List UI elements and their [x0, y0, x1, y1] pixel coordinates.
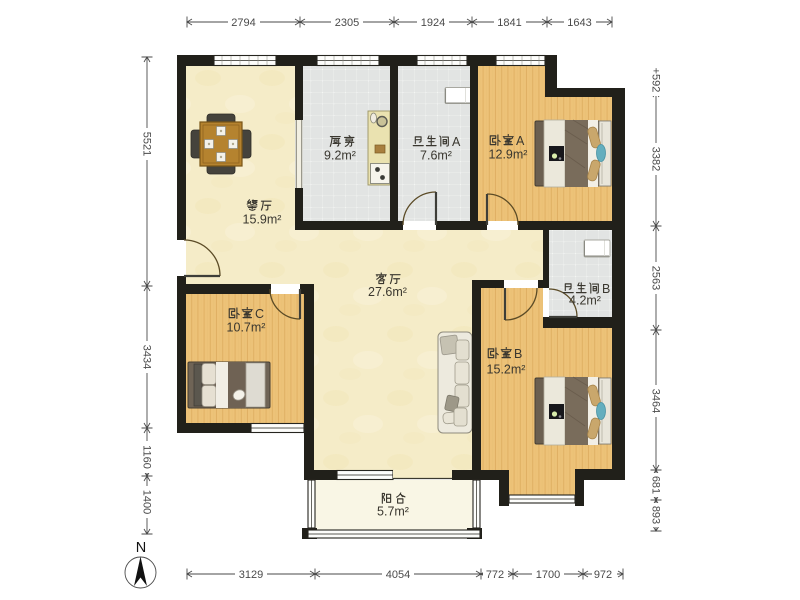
svg-text:972: 972	[594, 569, 612, 581]
svg-text:3464: 3464	[650, 389, 662, 413]
svg-text:1400: 1400	[141, 490, 153, 514]
svg-text:1841: 1841	[497, 17, 521, 29]
svg-text:772: 772	[486, 569, 504, 581]
svg-text:1643: 1643	[567, 17, 591, 29]
svg-text:893: 893	[650, 506, 662, 524]
svg-text:+592: +592	[650, 68, 662, 93]
svg-text:A: A	[452, 135, 461, 149]
svg-text:1160: 1160	[141, 445, 153, 469]
svg-text:2563: 2563	[650, 266, 662, 290]
svg-text:A: A	[516, 134, 525, 148]
svg-text:2794: 2794	[231, 17, 255, 29]
svg-text:27.6m²: 27.6m²	[368, 285, 407, 299]
svg-text:2305: 2305	[335, 17, 359, 29]
svg-text:1924: 1924	[421, 17, 445, 29]
svg-text:B: B	[602, 282, 610, 296]
svg-text:10.7m²: 10.7m²	[227, 321, 266, 335]
svg-text:B: B	[514, 347, 522, 361]
svg-text:15.2m²: 15.2m²	[487, 363, 526, 377]
svg-text:3434: 3434	[141, 345, 153, 369]
svg-text:12.9m²: 12.9m²	[489, 148, 528, 162]
svg-text:C: C	[255, 307, 264, 321]
svg-text:3382: 3382	[650, 147, 662, 171]
svg-text:4.2m²: 4.2m²	[569, 294, 601, 308]
svg-text:5521: 5521	[141, 132, 153, 156]
svg-text:1700: 1700	[536, 569, 560, 581]
svg-text:4054: 4054	[386, 569, 410, 581]
svg-text:15.9m²: 15.9m²	[243, 213, 282, 227]
svg-text:9.2m²: 9.2m²	[324, 149, 356, 163]
svg-text:681: 681	[650, 476, 662, 494]
svg-text:3129: 3129	[239, 569, 263, 581]
svg-text:7.6m²: 7.6m²	[420, 149, 452, 163]
svg-text:N: N	[136, 540, 146, 556]
svg-text:5.7m²: 5.7m²	[377, 505, 409, 519]
